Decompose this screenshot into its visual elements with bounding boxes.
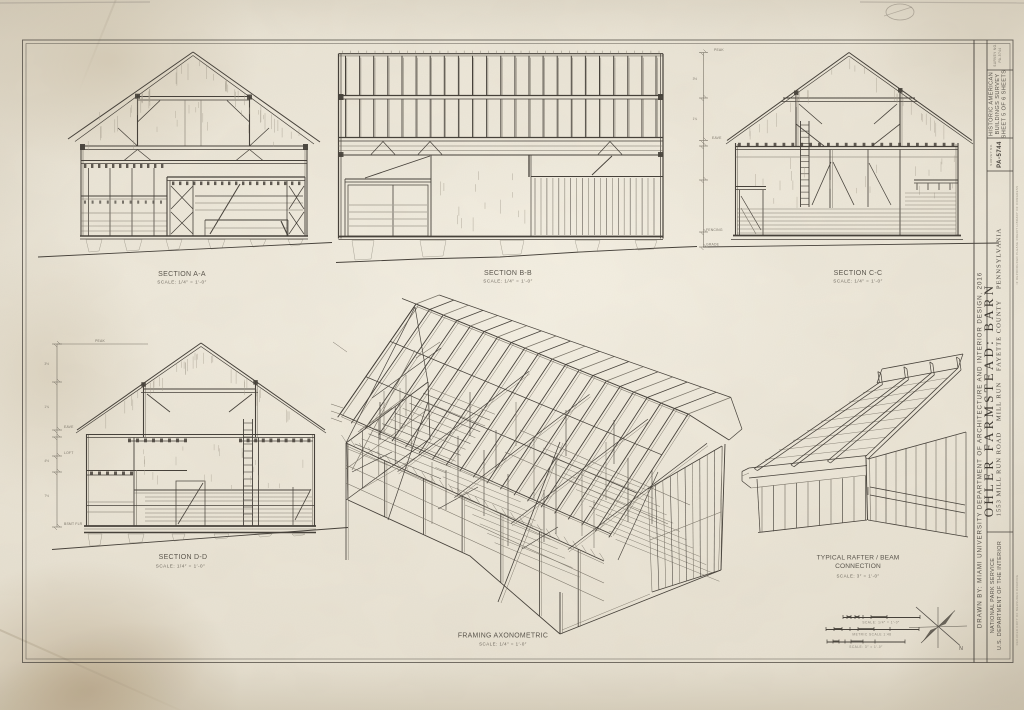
svg-text:SECTION C-C: SECTION C-C (834, 270, 883, 277)
svg-text:1553 MILL RUN ROAD MILL RUN: 1553 MILL RUN ROAD MILL RUN FAYETTE COUN… (996, 228, 1003, 517)
svg-text:BUILDINGS SURVEY: BUILDINGS SURVEY (995, 73, 1001, 134)
svg-text:SECTION D-D: SECTION D-D (159, 554, 208, 561)
svg-text:PEAK: PEAK (714, 48, 724, 52)
svg-text:NATIONAL PARK SERVICE: NATIONAL PARK SERVICE (990, 558, 996, 634)
svg-text:SCALE: 3″ = 1′-0″: SCALE: 3″ = 1′-0″ (849, 645, 883, 649)
svg-text:HISTORIC AMERICAN: HISTORIC AMERICAN (989, 72, 995, 136)
svg-text:SURVEY NO.: SURVEY NO. (993, 43, 997, 67)
svg-text:SCALE: 1/4″ = 1′-0″: SCALE: 1/4″ = 1′-0″ (156, 564, 206, 569)
svg-text:SHEET 5 OF 6 SHEETS: SHEET 5 OF 6 SHEETS (1002, 70, 1008, 139)
svg-text:LOFT: LOFT (64, 451, 73, 455)
svg-text:1¾: 1¾ (44, 405, 49, 409)
svg-text:SCALE: 1/4″ = 1′-0″: SCALE: 1/4″ = 1′-0″ (479, 642, 527, 647)
svg-text:DRAWN BY: MIAMI UNIVERSITY DEP: DRAWN BY: MIAMI UNIVERSITY DEPARTMENT OF… (977, 272, 984, 628)
svg-text:METRIC SCALE 1:48: METRIC SCALE 1:48 (852, 633, 891, 637)
svg-text:CONNECTION: CONNECTION (835, 563, 881, 570)
svg-text:4½: 4½ (44, 459, 49, 463)
svg-text:SECTION A-A: SECTION A-A (158, 271, 206, 278)
svg-text:U.S. DEPARTMENT OF THE INTERIO: U.S. DEPARTMENT OF THE INTERIOR (997, 541, 1003, 650)
svg-text:EAVE: EAVE (712, 136, 722, 140)
svg-text:3½: 3½ (44, 362, 49, 366)
svg-text:SCALE: 1/4″ = 1′-0″: SCALE: 1/4″ = 1′-0″ (483, 279, 533, 284)
svg-text:EAVE: EAVE (64, 425, 74, 429)
svg-text:3½: 3½ (693, 77, 698, 81)
svg-text:N: N (959, 646, 963, 652)
svg-text:BSMT FLR: BSMT FLR (64, 522, 83, 526)
svg-text:SECTION B-B: SECTION B-B (484, 270, 532, 277)
svg-text:SURVEY NO.: SURVEY NO. (989, 143, 993, 165)
svg-text:SCALE: 1/4″ = 1′-0″: SCALE: 1/4″ = 1′-0″ (833, 279, 883, 284)
svg-text:PEAK: PEAK (95, 339, 105, 343)
svg-text:FENCING: FENCING (706, 228, 723, 232)
svg-text:1¾: 1¾ (693, 117, 698, 121)
svg-text:GRADE: GRADE (706, 243, 720, 247)
svg-text:SCALE: 1/4″ = 1′-0″: SCALE: 1/4″ = 1′-0″ (157, 280, 207, 285)
svg-text:REDUCED COPY OF MEASURED DRAWI: REDUCED COPY OF MEASURED DRAWING (1015, 575, 1019, 646)
svg-text:IF REPRODUCED PLEASE CREDIT LI: IF REPRODUCED PLEASE CREDIT LIBRARY OF C… (1015, 186, 1019, 285)
svg-text:PA-5744: PA-5744 (997, 141, 1003, 168)
svg-text:SCALE: 1/4″ = 1′-0″: SCALE: 1/4″ = 1′-0″ (862, 621, 900, 625)
svg-text:TYPICAL RAFTER / BEAM: TYPICAL RAFTER / BEAM (817, 555, 900, 562)
svg-text:7½: 7½ (44, 494, 49, 498)
svg-text:SCALE: 3″ = 1′-0″: SCALE: 3″ = 1′-0″ (836, 574, 879, 579)
svg-text:PA-5744: PA-5744 (998, 48, 1002, 63)
svg-text:FRAMING AXONOMETRIC: FRAMING AXONOMETRIC (458, 633, 548, 640)
